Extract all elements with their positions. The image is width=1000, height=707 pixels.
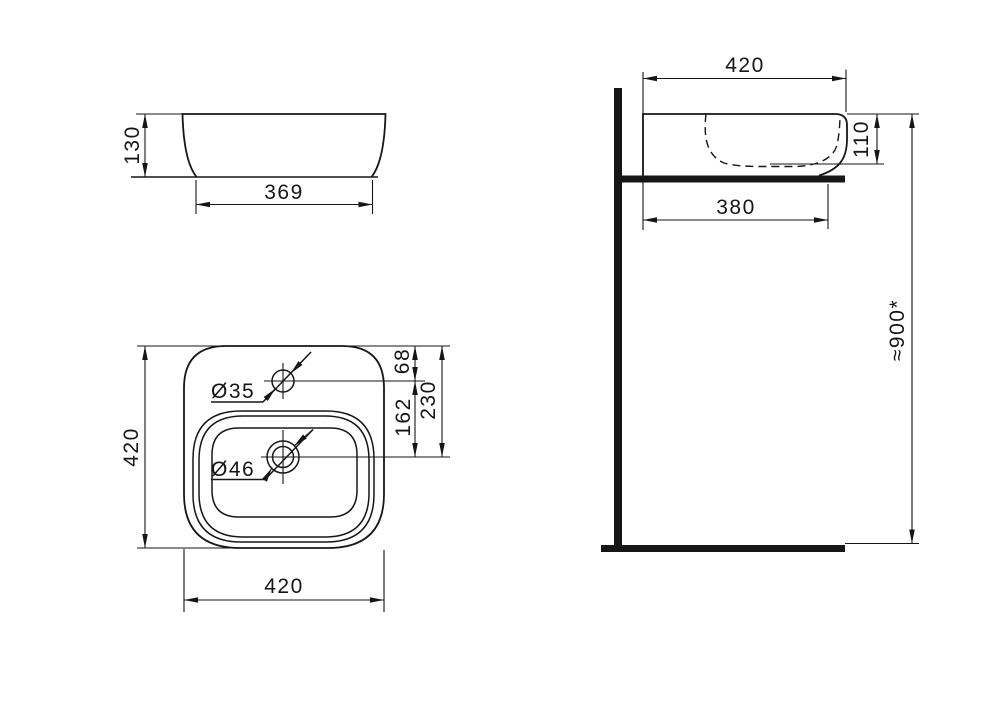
side-base-width-label: 369 (264, 181, 304, 204)
leader-arrow (294, 430, 313, 446)
tap-hole-diameter-label: Ø35 (211, 380, 255, 403)
tap-to-drain-dimension: 162 (392, 381, 415, 457)
hidden-bowl-outline (705, 114, 840, 167)
basin-section-outline (643, 114, 847, 176)
drain-offset-dimension: 230 (417, 346, 442, 457)
section-base-width-label: 380 (716, 196, 756, 219)
rim-width-dimension: 420 (643, 54, 846, 112)
drain-offset-label: 230 (417, 380, 440, 420)
plan-width-label: 420 (264, 575, 304, 598)
overall-width-dimension: 420 (184, 549, 384, 612)
basin-side-outline (183, 114, 386, 177)
plan-depth-label: 420 (120, 427, 143, 467)
side-view: 130 369 (121, 114, 386, 214)
drawing-root: 130 369 420 (120, 54, 919, 612)
base-width-dimension: 380 (643, 184, 828, 229)
leader-arrow (263, 389, 275, 402)
section-mounting-height-label: ≈900* (886, 299, 909, 361)
tap-offset-label: 68 (391, 348, 414, 374)
drain-diameter-label: Ø46 (211, 458, 255, 481)
drawing-sheet: 130 369 420 (0, 0, 1000, 707)
tap-offset-dimension: 68 (391, 346, 415, 381)
tap-to-drain-label: 162 (392, 397, 415, 437)
leader-arrow (291, 352, 311, 373)
base-width-dimension: 369 (196, 180, 373, 214)
side-height-label: 130 (121, 125, 144, 165)
plan-view: Ø35 Ø46 420 420 (120, 346, 450, 612)
bowl-depth-dimension: 110 (850, 114, 877, 164)
height-dimension: 130 (121, 114, 145, 177)
washbasin-dimension-drawing: 130 369 420 (0, 0, 1000, 707)
section-rim-width-label: 420 (725, 54, 765, 77)
mounting-height-dimension: ≈900* (886, 114, 912, 544)
section-view: 420 110 380 ≈900* (601, 54, 919, 552)
overall-depth-dimension: 420 (120, 346, 145, 548)
section-bowl-depth-label: 110 (850, 120, 873, 158)
